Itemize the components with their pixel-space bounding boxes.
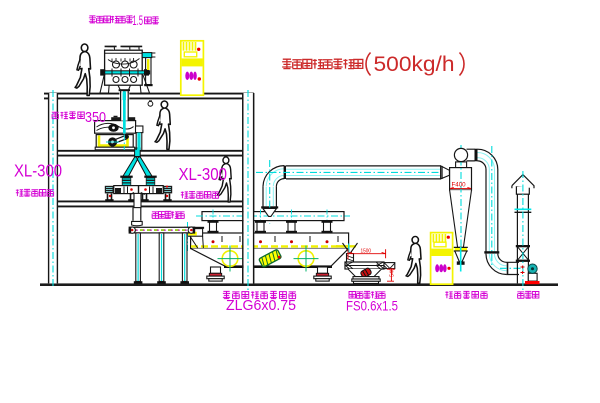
svg-text:350: 350	[85, 109, 106, 126]
svg-text:ZLG6x0.75: ZLG6x0.75	[226, 297, 296, 314]
svg-text:XL-300: XL-300	[179, 164, 228, 184]
svg-text:500kg/h: 500kg/h	[374, 52, 455, 76]
svg-text:1500: 1500	[361, 249, 372, 255]
svg-text:540: 540	[389, 268, 395, 277]
svg-text:1.5: 1.5	[132, 13, 143, 28]
svg-text:F400: F400	[452, 181, 467, 188]
svg-text:FS0.6x1.5: FS0.6x1.5	[346, 299, 398, 314]
svg-text:XL-300: XL-300	[14, 161, 62, 181]
